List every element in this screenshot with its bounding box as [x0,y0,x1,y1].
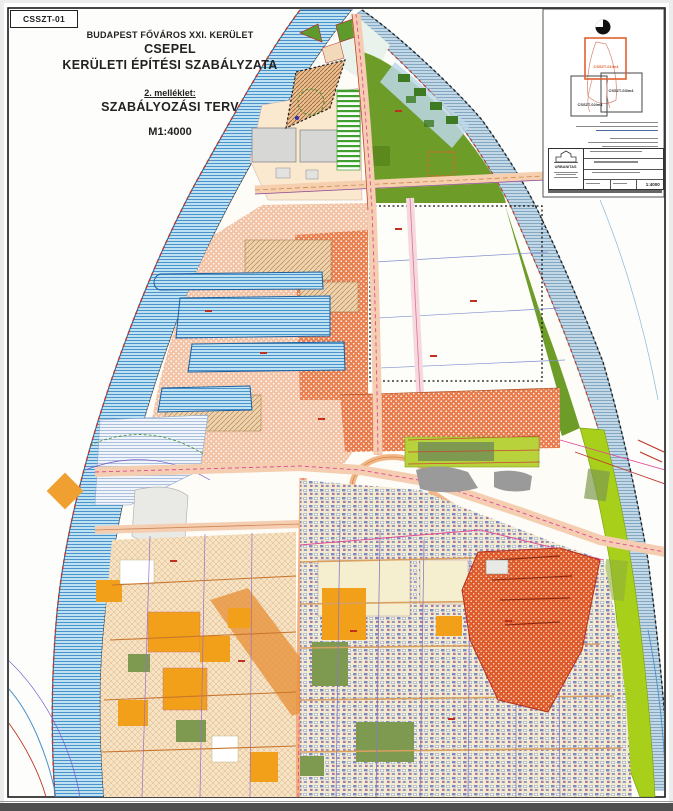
title-block: BUDAPEST FŐVÁROS XXI. KERÜLET CSEPEL KER… [30,30,310,138]
index-sheet-01: CSSZT-01/m4 [589,65,623,70]
stamp-footer-strip [548,190,662,193]
north-arrow-icon [596,20,611,35]
stamp-logo-cell: URBANITAS [549,149,584,189]
title-annex: 2. melléklet: [30,88,310,98]
sheet-number-label: CSSZT-01 [10,10,78,28]
urbanitas-logo-icon [553,150,579,164]
plan-sheet: CSSZT-01 BUDAPEST FŐVÁROS XXI. KERÜLET C… [0,0,673,811]
index-sheet-02: CSSZT-02/m4 [573,103,607,108]
stamp-scale-cell: 1:4000 [637,180,663,189]
title-csepel: CSEPEL [30,42,310,56]
stamp-block: URBANITAS 1:4000 [548,148,664,190]
title-district: BUDAPEST FŐVÁROS XXI. KERÜLET [30,30,310,40]
stamp-firm-name: URBANITAS [555,165,577,170]
title-code: KERÜLETI ÉPÍTÉSI SZABÁLYZATA [30,58,310,72]
title-scale: M1:4000 [30,126,310,138]
title-plan-name: SZABÁLYOZÁSI TERV [30,100,310,114]
index-sheet-03: CSSZT-03/m4 [604,89,638,94]
window-bottom-bar [0,803,673,811]
stamp-table: 1:4000 [584,149,663,189]
